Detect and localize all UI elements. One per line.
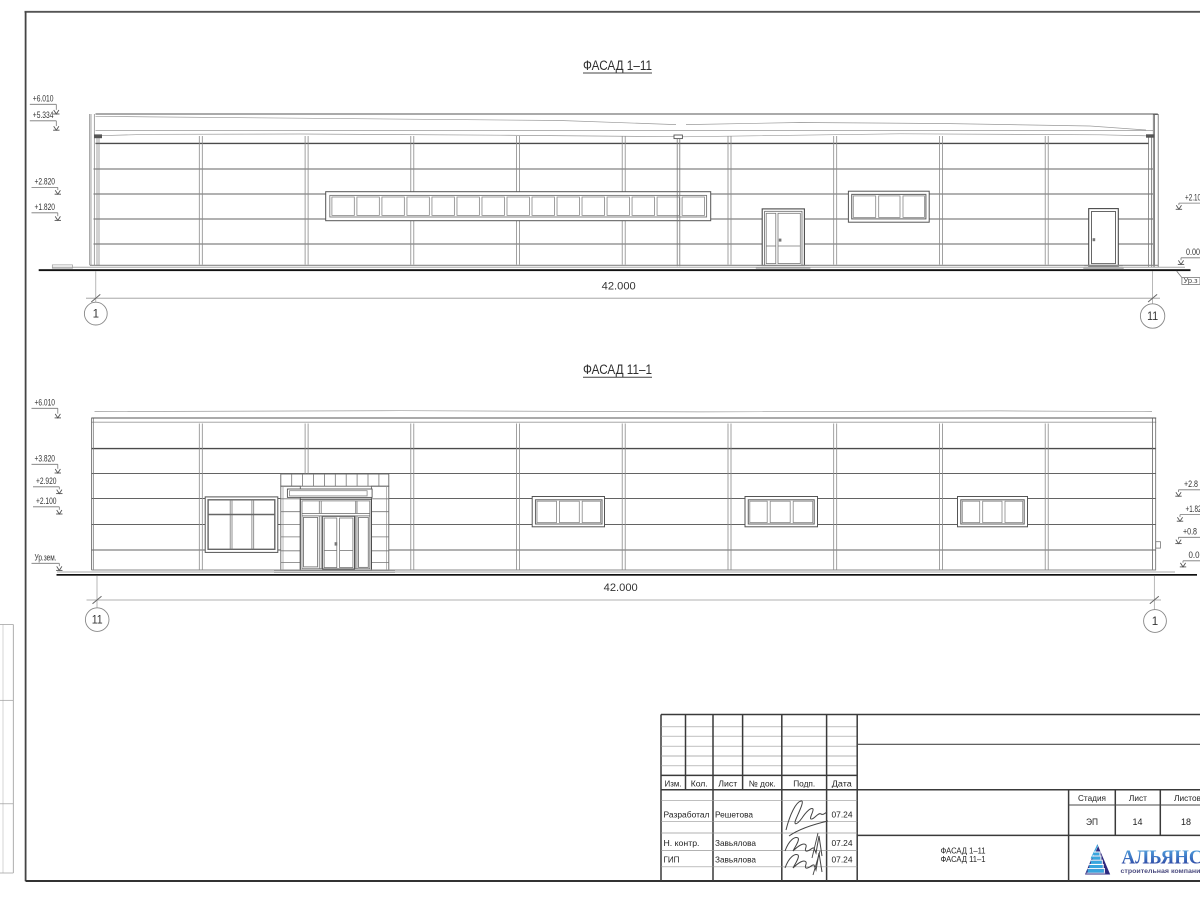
svg-text:Изм.: Изм.	[665, 779, 682, 789]
svg-text:07.24: 07.24	[832, 809, 853, 819]
svg-text:42.000: 42.000	[602, 281, 636, 293]
svg-text:ФАСАД 1–11: ФАСАД 1–11	[583, 58, 652, 73]
svg-text:Кол.: Кол.	[691, 779, 708, 789]
svg-text:ФАСАД 11–1: ФАСАД 11–1	[941, 854, 986, 864]
svg-text:07.24: 07.24	[832, 854, 853, 864]
svg-text:14: 14	[1133, 817, 1143, 827]
svg-text:Разработал: Разработал	[664, 809, 710, 819]
svg-text:Листов: Листов	[1174, 793, 1200, 803]
svg-text:+2.920: +2.920	[36, 476, 57, 486]
svg-text:+6.010: +6.010	[35, 398, 56, 408]
svg-text:Ур.зем.: Ур.зем.	[35, 553, 57, 563]
svg-text:№ док.: № док.	[749, 779, 776, 789]
svg-text:Лист: Лист	[718, 779, 737, 789]
svg-text:Завьялова: Завьялова	[715, 838, 756, 848]
svg-text:Н. контр.: Н. контр.	[664, 838, 700, 848]
svg-text:АЛЬЯНС: АЛЬЯНС	[1122, 846, 1200, 868]
svg-text:0.0: 0.0	[1189, 550, 1200, 560]
svg-text:Лист: Лист	[1129, 793, 1147, 803]
svg-text:ЭП: ЭП	[1086, 817, 1098, 827]
svg-text:Ур.з: Ур.з	[1184, 276, 1199, 285]
svg-text:07.24: 07.24	[832, 838, 853, 848]
svg-text:+1.82: +1.82	[1186, 504, 1200, 514]
svg-text:Дата: Дата	[832, 779, 852, 789]
svg-text:+0.8: +0.8	[1183, 527, 1197, 537]
svg-text:42.000: 42.000	[604, 582, 638, 594]
svg-text:строительная компания: строительная компания	[1121, 868, 1200, 875]
svg-text:ФАСАД 11–1: ФАСАД 11–1	[583, 362, 652, 377]
svg-text:Стадия: Стадия	[1078, 793, 1106, 803]
svg-text:11: 11	[1147, 311, 1158, 323]
svg-text:1: 1	[93, 309, 99, 321]
svg-text:ГИП: ГИП	[664, 854, 680, 864]
svg-text:+2.820: +2.820	[35, 177, 56, 187]
svg-text:0.00: 0.00	[1186, 247, 1200, 257]
svg-text:+2.8: +2.8	[1184, 479, 1198, 489]
svg-text:Подп.: Подп.	[793, 779, 815, 789]
svg-text:11: 11	[92, 615, 103, 627]
svg-text:+3.820: +3.820	[35, 454, 56, 464]
svg-text:+2.100: +2.100	[36, 496, 57, 506]
svg-text:+1.820: +1.820	[35, 202, 56, 212]
svg-text:+5.334: +5.334	[33, 110, 54, 120]
svg-text:1: 1	[1152, 616, 1158, 628]
svg-text:+6.010: +6.010	[33, 94, 54, 104]
svg-text:+2.10: +2.10	[1185, 192, 1200, 202]
svg-text:Завьялова: Завьялова	[715, 854, 756, 864]
svg-text:18: 18	[1181, 817, 1191, 827]
svg-text:Решетова: Решетова	[715, 809, 753, 819]
